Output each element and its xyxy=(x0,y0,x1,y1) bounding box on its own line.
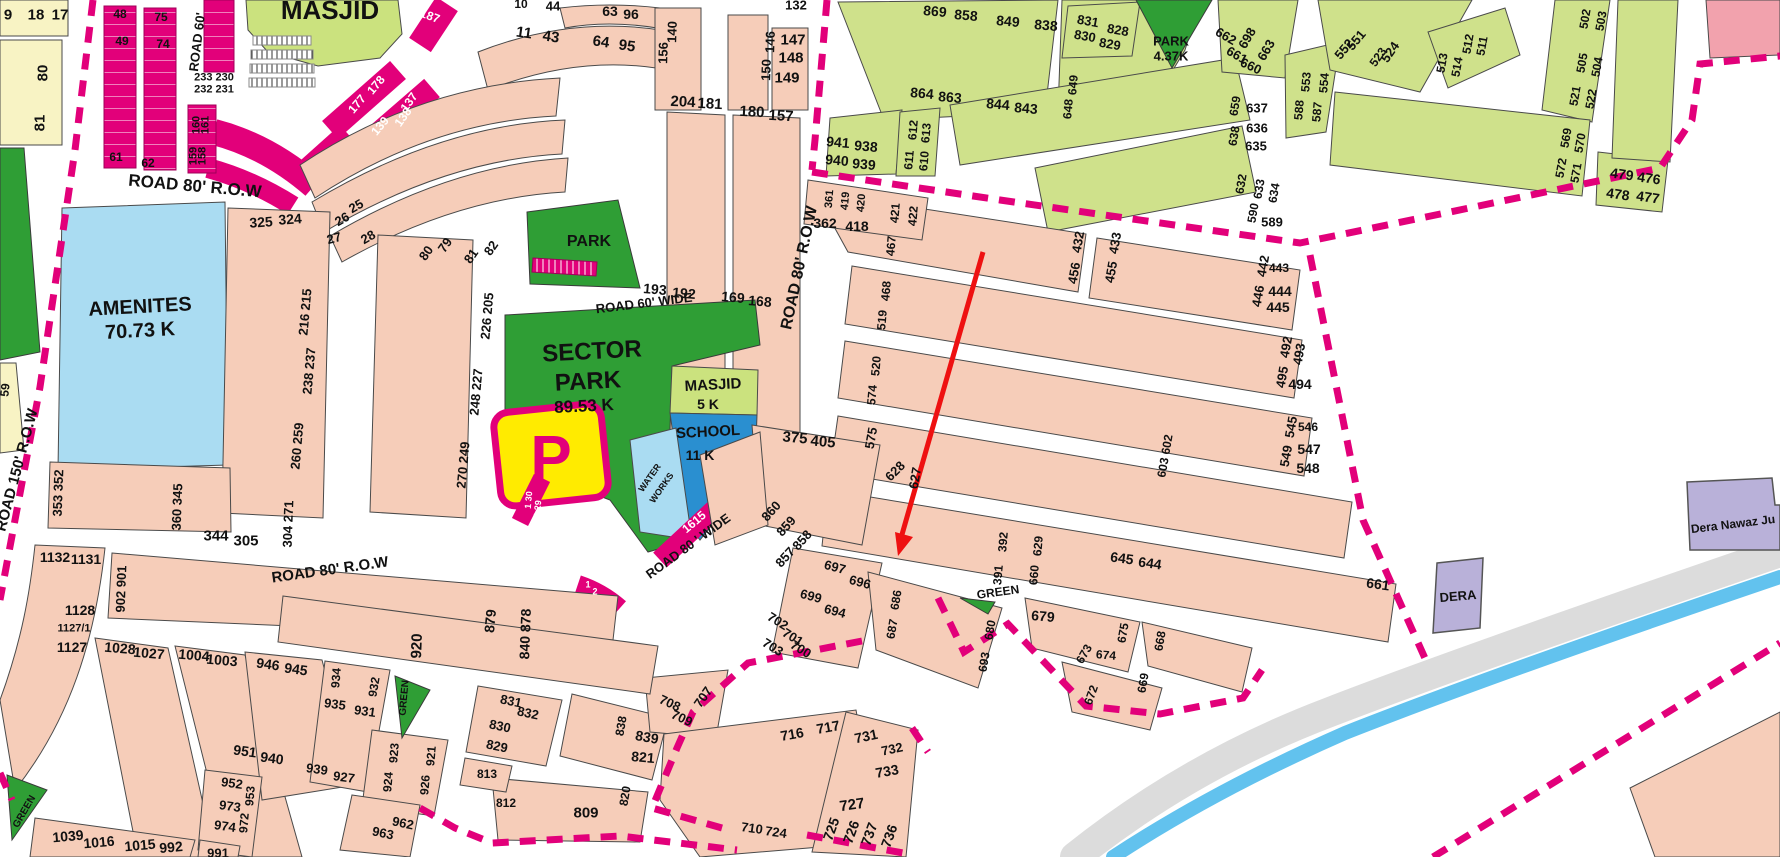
map-shapes-layer xyxy=(0,0,1780,857)
parking-logo xyxy=(492,403,609,508)
amenities-block xyxy=(58,202,228,470)
green-strip-left xyxy=(0,148,40,360)
green-plot-blocks xyxy=(826,0,1678,232)
pink-block-topright xyxy=(1706,0,1780,58)
plot-map-canvas[interactable]: MASJIDROAD 60'233 230232 231ROAD 80' R.O… xyxy=(0,0,1780,857)
dera-nawaz-box xyxy=(1687,478,1780,550)
dera-box xyxy=(1433,558,1483,633)
masjid-5k-block xyxy=(670,366,758,415)
